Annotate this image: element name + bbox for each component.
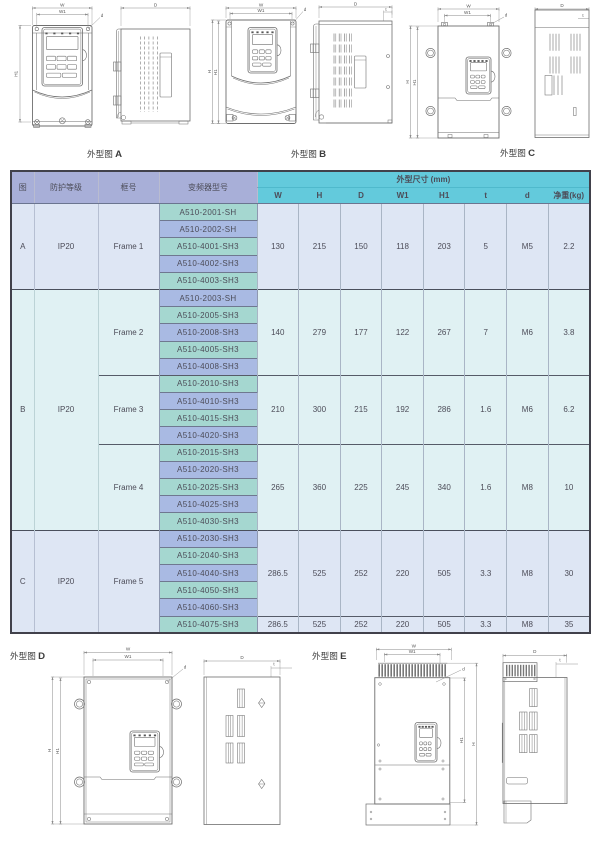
svg-text:W: W (60, 3, 65, 8)
svg-text:H: H (207, 70, 212, 73)
svg-text:W: W (466, 4, 471, 9)
svg-text:W: W (412, 644, 417, 649)
svg-text:W: W (126, 647, 131, 652)
svg-text:外型图 C: 外型图 C (500, 147, 535, 159)
svg-text:W1: W1 (464, 10, 471, 15)
svg-text:t: t (273, 662, 275, 667)
svg-text:W1: W1 (409, 649, 416, 654)
svg-text:d: d (184, 665, 187, 670)
svg-text:H: H (405, 80, 410, 83)
svg-text:t: t (385, 7, 387, 12)
svg-text:外型图 D: 外型图 D (10, 650, 45, 662)
svg-text:W1: W1 (258, 8, 265, 13)
svg-text:d: d (505, 13, 508, 18)
svg-text:D: D (240, 655, 244, 660)
svg-text:外型图 E: 外型图 E (312, 650, 347, 662)
svg-text:H1: H1 (459, 737, 464, 743)
svg-text:D: D (354, 2, 358, 7)
svg-text:W1: W1 (125, 654, 132, 659)
svg-text:H: H (47, 749, 52, 752)
svg-text:d: d (462, 667, 465, 672)
svg-text:d: d (304, 7, 307, 12)
svg-text:D: D (533, 649, 537, 654)
svg-text:外型图 B: 外型图 B (291, 148, 326, 160)
svg-text:D: D (154, 3, 158, 8)
svg-text:H1: H1 (14, 70, 19, 76)
svg-text:外型图 A: 外型图 A (87, 148, 122, 160)
svg-text:t: t (559, 658, 561, 663)
svg-text:H1: H1 (412, 79, 417, 85)
svg-text:H1: H1 (55, 748, 60, 754)
svg-text:H: H (471, 742, 476, 745)
svg-text:W1: W1 (59, 9, 66, 14)
svg-text:D: D (560, 3, 564, 8)
svg-text:t: t (582, 13, 584, 18)
svg-text:W: W (259, 3, 264, 8)
svg-text:d: d (101, 13, 104, 18)
svg-text:H1: H1 (213, 69, 218, 75)
